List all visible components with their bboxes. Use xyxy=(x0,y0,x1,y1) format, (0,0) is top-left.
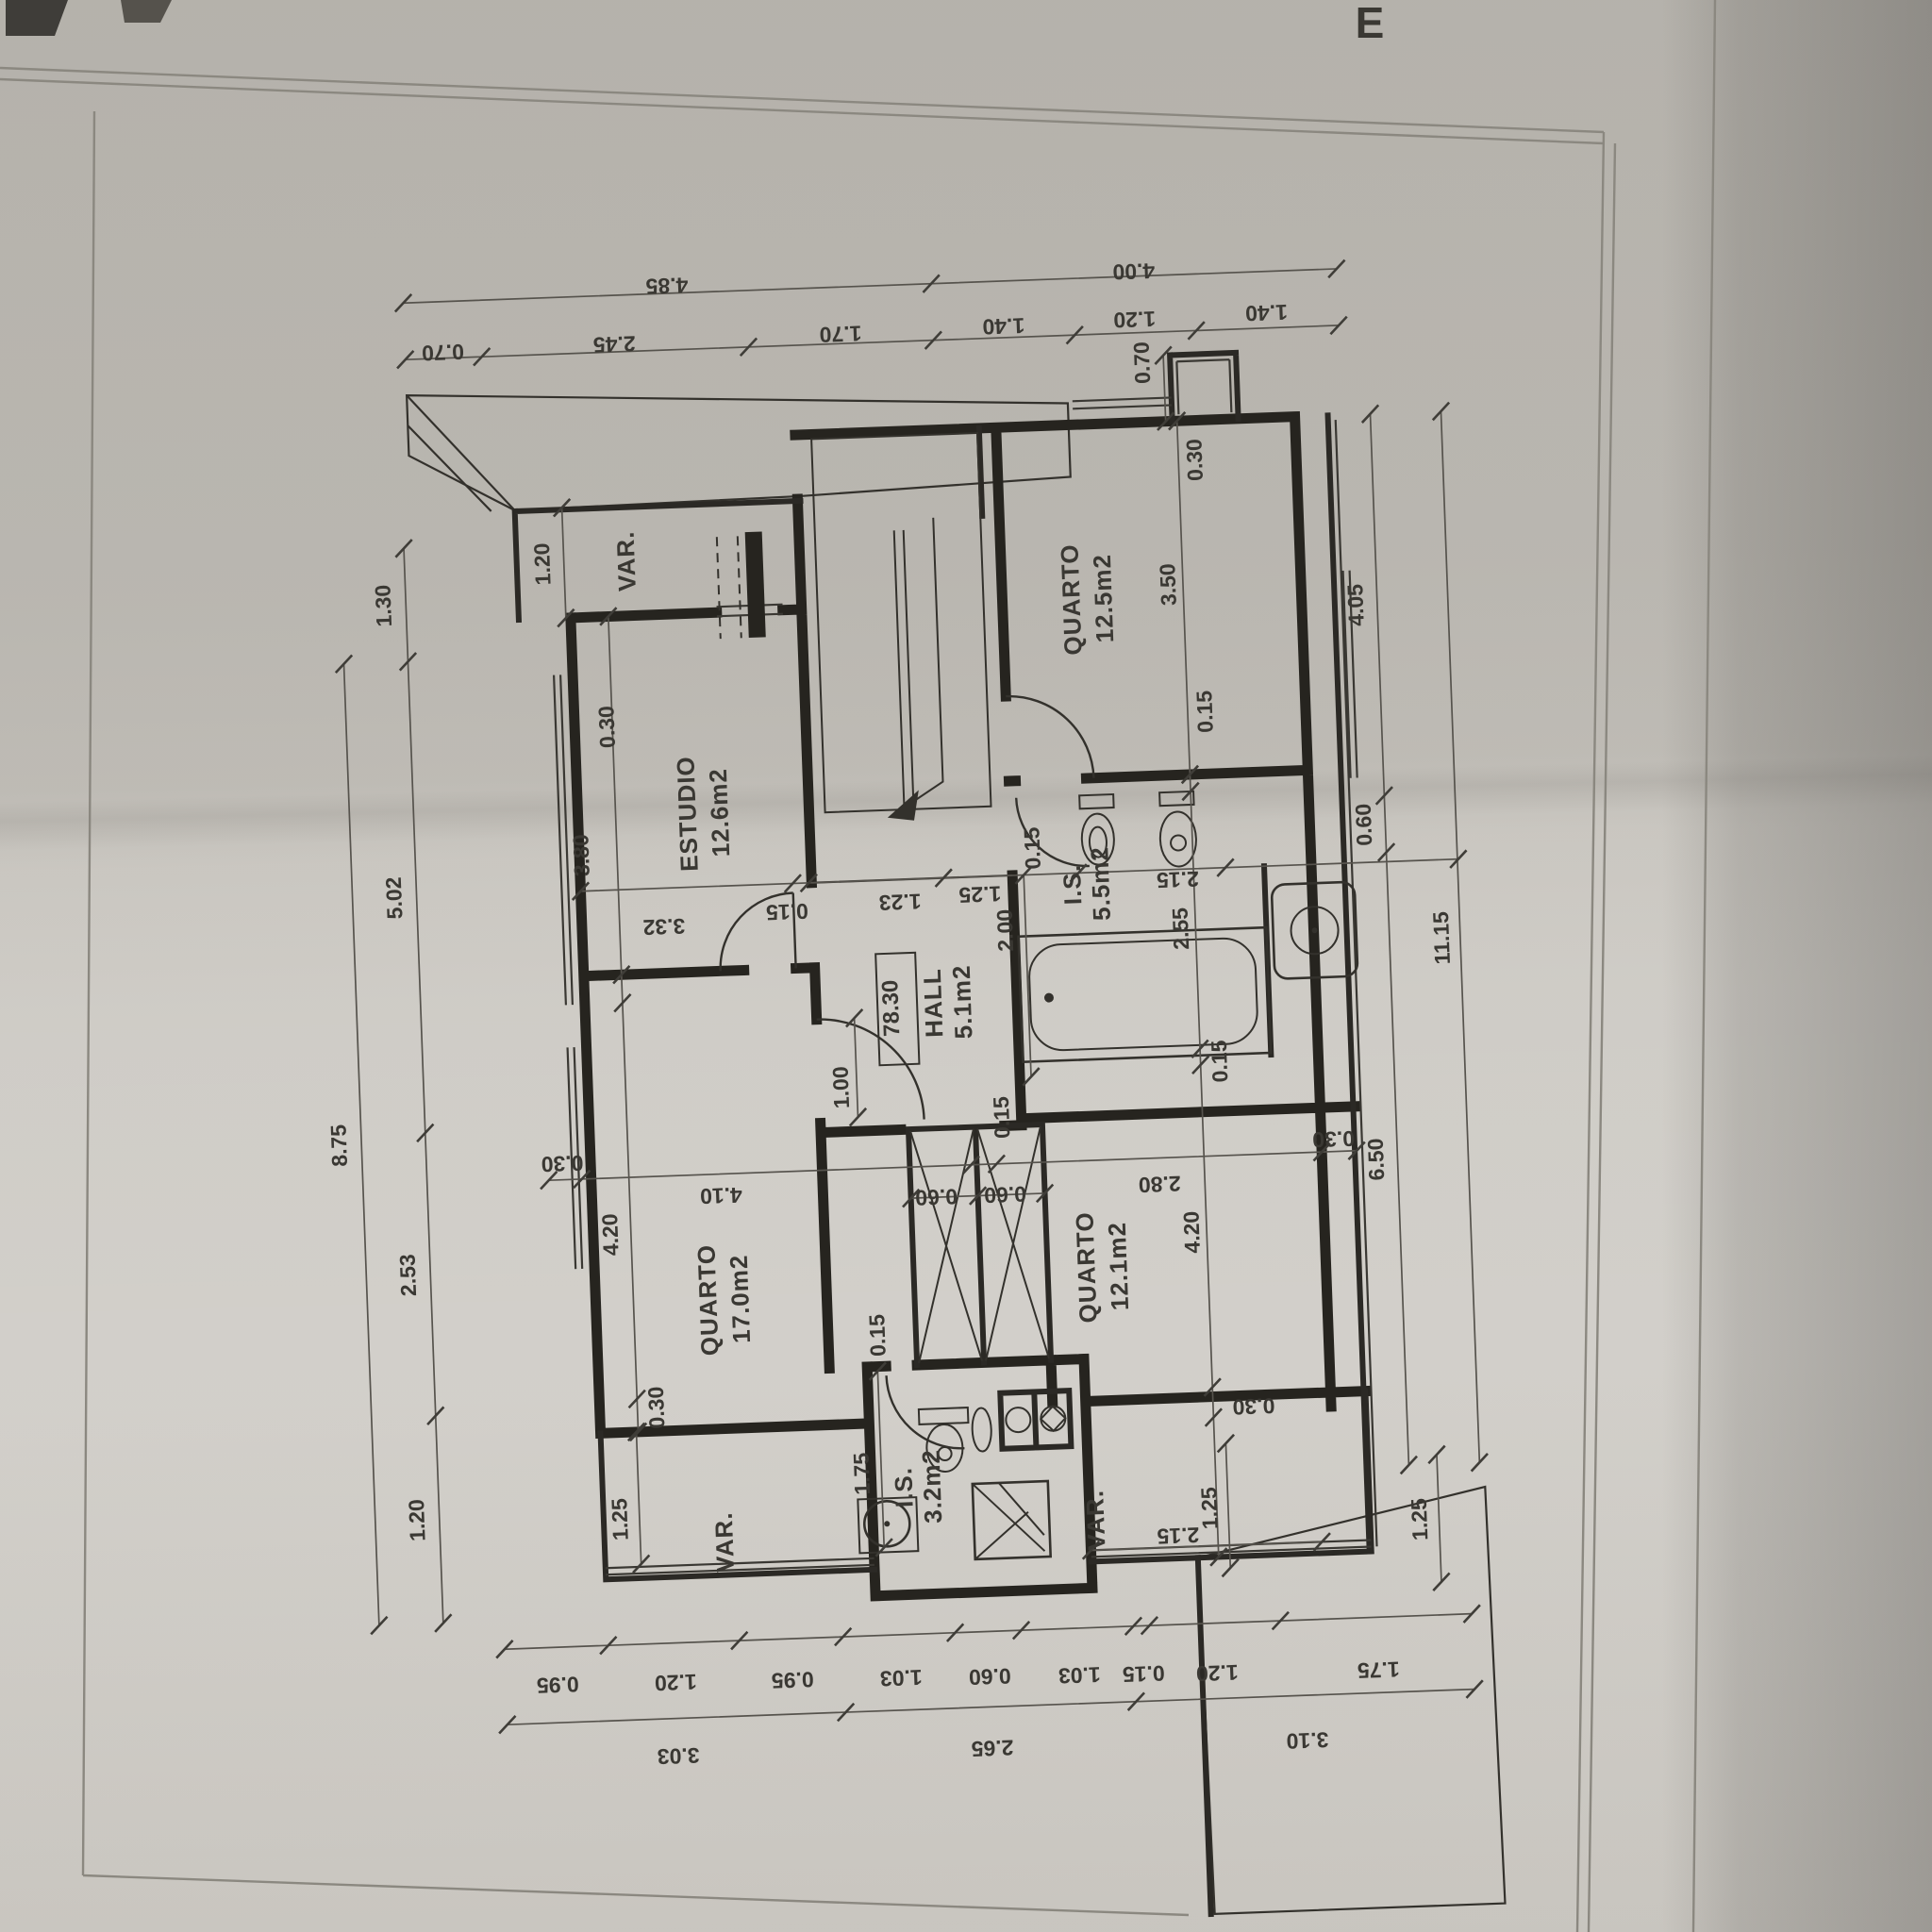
bathtub-icon xyxy=(1019,927,1272,1062)
room-quarto-12_1-area: 12.1m2 xyxy=(1103,1222,1134,1311)
photo-corner-artifact-2 xyxy=(121,0,172,23)
dim-label-3.32: 3.32 xyxy=(642,914,686,941)
dim-label-0.60: 0.60 xyxy=(968,1664,1011,1690)
dim-label-1.20: 1.20 xyxy=(404,1499,430,1542)
door-quarto12-5 xyxy=(1006,693,1093,781)
room-estudio-area: 12.6m2 xyxy=(704,768,735,858)
dim-label-3.50: 3.50 xyxy=(1155,563,1181,607)
room-is-5_5-label: I.S. xyxy=(1058,864,1088,906)
closet-circle-icon xyxy=(1041,1406,1066,1431)
dim-label-1.40: 1.40 xyxy=(1245,300,1289,326)
room-hall-label: HALL xyxy=(918,968,949,1038)
sheet-corner-letter: E xyxy=(1356,0,1385,47)
dim-label-0.30: 0.30 xyxy=(593,706,620,749)
room-quarto-12_1-label: QUARTO xyxy=(1070,1211,1102,1324)
dim-label-1.23: 1.23 xyxy=(878,890,922,916)
roof-hatch xyxy=(407,371,1071,514)
door-is3-2 xyxy=(887,1373,965,1451)
dim-label-0.70: 0.70 xyxy=(1129,341,1156,385)
dim-label-4.20: 4.20 xyxy=(597,1213,624,1257)
dim-label-1.25: 1.25 xyxy=(607,1498,633,1541)
dim-label-3.10: 3.10 xyxy=(1286,1727,1329,1754)
room-quarto-17-label: QUARTO xyxy=(691,1243,724,1356)
dim-label-1.20: 1.20 xyxy=(654,1670,697,1696)
room-quarto-12_5-area: 12.5m2 xyxy=(1088,554,1119,643)
dim-label-2.80: 2.80 xyxy=(1138,1172,1181,1198)
dim-label-2.55: 2.55 xyxy=(1168,907,1194,950)
sheet-right-border xyxy=(1577,132,1615,1932)
dim-label-2.53: 2.53 xyxy=(394,1254,421,1297)
floorplan-sheet: E xyxy=(0,0,1932,1932)
dim-label-8.75: 8.75 xyxy=(325,1124,352,1167)
dim-label-1.40: 1.40 xyxy=(982,313,1025,340)
dim-label-5.02: 5.02 xyxy=(381,876,408,920)
dim-label-0.15: 0.15 xyxy=(864,1313,891,1357)
dim-label-4.20: 4.20 xyxy=(1178,1210,1205,1254)
dim-label-0.15: 0.15 xyxy=(765,899,808,925)
dim-label-0.30: 0.30 xyxy=(541,1151,584,1177)
wall-pier xyxy=(745,531,766,638)
dim-label-3.03: 3.03 xyxy=(657,1743,700,1770)
dim-label-2.65: 2.65 xyxy=(971,1736,1014,1762)
dim-label-1.25: 1.25 xyxy=(1407,1498,1433,1541)
dim-label-1.03: 1.03 xyxy=(1058,1662,1101,1689)
dim-label-0.95: 0.95 xyxy=(771,1667,814,1693)
dim-label-0.60: 0.60 xyxy=(984,1182,1027,1208)
plan-labels: QUARTO12.5m2ESTUDIO12.6m2HALL5.1m2I.S.5.… xyxy=(295,245,1484,1788)
dim-label-4.85: 4.85 xyxy=(645,273,689,299)
sheet-borders: E xyxy=(0,0,1715,1932)
dim-label-2.15: 2.15 xyxy=(1157,1523,1200,1549)
floor-level-value: 78.30 xyxy=(877,979,905,1037)
dim-label-0.70: 0.70 xyxy=(422,340,465,366)
dim-label-0.30: 0.30 xyxy=(1232,1393,1275,1420)
balcony-left-label: VAR. xyxy=(709,1511,740,1573)
room-quarto-12_5-label: QUARTO xyxy=(1055,543,1087,656)
dim-label-1.25: 1.25 xyxy=(958,881,1002,908)
stair-railing xyxy=(894,530,914,813)
dim-label-1.20: 1.20 xyxy=(1195,1660,1239,1687)
dim-label-1.25: 1.25 xyxy=(1196,1487,1223,1530)
dim-label-1.00: 1.00 xyxy=(828,1066,855,1109)
room-estudio-label: ESTUDIO xyxy=(671,756,703,873)
paper-edge xyxy=(1693,0,1715,1932)
dim-label-0.15: 0.15 xyxy=(1207,1040,1233,1083)
dim-label-0.30: 0.30 xyxy=(1312,1126,1356,1153)
sheet-top-border xyxy=(0,68,1604,143)
dim-label-1.75: 1.75 xyxy=(1357,1657,1400,1683)
dim-label-2.45: 2.45 xyxy=(592,331,636,358)
dim-label-4.10: 4.10 xyxy=(700,1183,743,1209)
closet-circle-icon xyxy=(1006,1407,1031,1433)
dim-label-1.03: 1.03 xyxy=(879,1665,923,1691)
dim-label-0.60: 0.60 xyxy=(915,1184,958,1210)
stair-direction-line xyxy=(893,518,943,808)
dim-label-0.15: 0.15 xyxy=(989,1096,1015,1140)
room-is-5_5-area: 5.5m2 xyxy=(1085,846,1116,922)
plan-drawing: QUARTO12.5m2ESTUDIO12.6m2HALL5.1m2I.S.5.… xyxy=(295,245,1506,1932)
dim-label-0.15: 0.15 xyxy=(1191,690,1218,733)
dim-label-3.80: 3.80 xyxy=(568,834,594,877)
dim-label-6.50: 6.50 xyxy=(1363,1138,1390,1181)
dim-label-2.00: 2.00 xyxy=(992,908,1019,952)
toilet-small-icon xyxy=(919,1407,969,1424)
room-quarto-17-area: 17.0m2 xyxy=(724,1254,756,1343)
balcony-top-label: VAR. xyxy=(611,530,641,591)
dim-label-0.15: 0.15 xyxy=(1019,826,1045,870)
dim-label-0.15: 0.15 xyxy=(1122,1661,1165,1688)
room-is-3_2-label: I.S. xyxy=(889,1467,919,1508)
dim-label-4.05: 4.05 xyxy=(1342,583,1369,626)
room-hall-area: 5.1m2 xyxy=(947,964,978,1040)
dim-label-2.15: 2.15 xyxy=(1156,867,1199,893)
balcony-right-label: VAR. xyxy=(1080,1490,1110,1551)
dashed-opening xyxy=(717,536,741,639)
dim-label-1.70: 1.70 xyxy=(819,321,862,347)
roof-ridge-lines xyxy=(407,391,515,514)
dim-label-0.30: 0.30 xyxy=(1181,439,1207,482)
dim-label-0.60: 0.60 xyxy=(1351,803,1377,846)
cistern-icon xyxy=(972,1407,992,1452)
room-is-3_2-area: 3.2m2 xyxy=(916,1449,947,1524)
bidet-icon xyxy=(1079,794,1113,808)
dim-label-0.30: 0.30 xyxy=(643,1386,670,1429)
dim-label-4.00: 4.00 xyxy=(1112,258,1156,285)
photo-corner-artifact xyxy=(6,0,68,36)
dim-label-1.20: 1.20 xyxy=(1113,307,1157,333)
dim-label-0.95: 0.95 xyxy=(536,1672,579,1698)
dim-label-1.30: 1.30 xyxy=(370,584,396,627)
dim-label-1.75: 1.75 xyxy=(849,1452,875,1495)
dim-label-1.20: 1.20 xyxy=(529,542,556,586)
dim-label-11.15: 11.15 xyxy=(1428,911,1455,965)
